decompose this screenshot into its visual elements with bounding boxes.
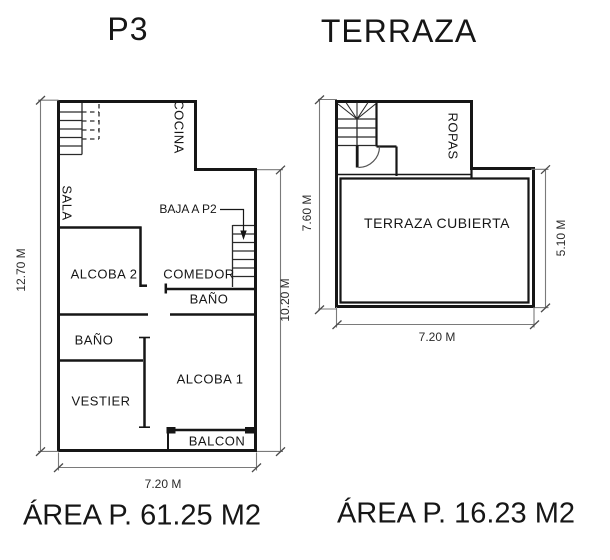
dim-terraza-left-height: 7.60 M [301, 195, 313, 232]
terraza-dimension-lines [318, 99, 549, 328]
room-label-cocina: COCINA [173, 100, 186, 154]
dim-p3-left-height: 12.70 M [15, 248, 27, 291]
room-label-alcoba1: ALCOBA 1 [177, 373, 244, 386]
p3-dimension-ticks [36, 96, 285, 472]
room-label-sala: SALA [61, 185, 74, 220]
room-label-comedor: COMEDOR [163, 268, 234, 281]
dim-p3-width: 7.20 M [145, 478, 182, 490]
room-label-terraza-cubierta: TERRAZA CUBIERTA [364, 216, 510, 230]
baja-a-p2-leader-arrow [220, 210, 247, 241]
dim-terraza-right-height: 5.10 M [555, 220, 567, 257]
terraza-dimension-ticks [315, 96, 550, 330]
plan-title-p3: P3 [107, 13, 148, 45]
room-label-alcoba2: ALCOBA 2 [71, 268, 138, 281]
dim-p3-right-height: 10.20 M [279, 278, 291, 321]
room-label-bano-izq: BAÑO [75, 334, 114, 347]
terraza-outer-walls [337, 102, 534, 307]
annotation-baja-a-p2: BAJA A P2 [159, 203, 216, 215]
terraza-winder-stair [338, 103, 376, 146]
floorplan-canvas: P3 TERRAZA COCINA SALA BAJA A P2 ALCOBA … [0, 0, 610, 560]
p3-stair-top-left [60, 103, 99, 155]
area-total-terraza: ÁREA P. 16.23 M2 [337, 500, 575, 529]
terraza-inner-walls [337, 102, 529, 303]
room-label-balcon: BALCON [189, 435, 245, 448]
dim-terraza-width: 7.20 M [419, 331, 456, 343]
room-label-ropas: ROPAS [447, 112, 460, 159]
terraza-door [356, 146, 380, 168]
area-total-p3: ÁREA P. 61.25 M2 [23, 502, 261, 531]
room-label-bano-pasillo: BAÑO [190, 293, 229, 306]
room-label-vestier: VESTIER [71, 395, 130, 408]
plan-title-terraza: TERRAZA [321, 15, 477, 47]
